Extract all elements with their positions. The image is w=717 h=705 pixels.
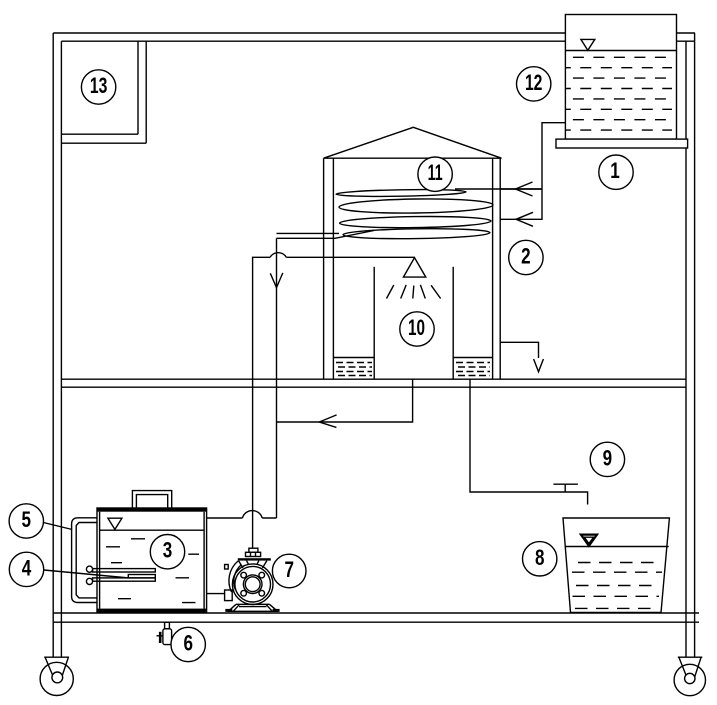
svg-text:5: 5 [22, 507, 32, 532]
svg-text:10: 10 [408, 315, 425, 340]
svg-text:12: 12 [525, 70, 543, 95]
svg-text:1: 1 [610, 158, 620, 183]
svg-text:3: 3 [163, 538, 173, 563]
svg-text:9: 9 [603, 445, 613, 470]
svg-text:13: 13 [90, 73, 108, 98]
svg-text:4: 4 [22, 555, 32, 580]
svg-text:2: 2 [521, 244, 531, 269]
svg-text:7: 7 [284, 557, 294, 582]
svg-text:8: 8 [535, 545, 545, 570]
svg-text:6: 6 [183, 631, 193, 656]
svg-text:11: 11 [428, 160, 443, 185]
